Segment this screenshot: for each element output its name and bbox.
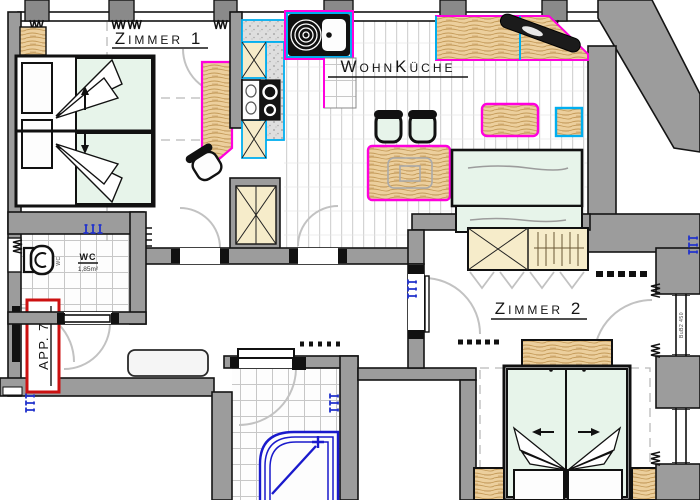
apartment-number: APP. 7 bbox=[36, 322, 51, 370]
wc-label: WC bbox=[80, 252, 97, 262]
bathroom-east-wall bbox=[340, 356, 358, 500]
kitchen-zimmer1-wall bbox=[230, 12, 242, 128]
zimmer1-label-group: Zimmer 1 bbox=[112, 29, 208, 48]
kitchen-cabinet bbox=[242, 42, 266, 78]
wall-slot bbox=[3, 387, 22, 395]
zimmer1-door-opening bbox=[180, 248, 220, 264]
zimmer2-window bbox=[672, 408, 690, 464]
zimmer2-west-wall-upper bbox=[408, 230, 424, 264]
dining-table bbox=[368, 146, 450, 200]
zimmer1-double-bed bbox=[16, 56, 154, 206]
wohnkueche-door-opening bbox=[298, 248, 338, 264]
zimmer2-wardrobe bbox=[468, 228, 588, 270]
dining-chair bbox=[408, 110, 437, 142]
dining-chair bbox=[374, 110, 403, 142]
wc-area: 1,85m² bbox=[78, 266, 99, 273]
stove bbox=[242, 80, 280, 120]
zimmer2-label-group: Zimmer 2 bbox=[491, 299, 587, 319]
zimmer2-door-leaf bbox=[425, 276, 429, 332]
zimmer2-window: BuB2 450 bbox=[672, 294, 690, 356]
wardrobe-door-fold bbox=[470, 272, 584, 288]
kitchen-counter-top bbox=[242, 20, 286, 42]
zimmer2-label: Zimmer 2 bbox=[495, 299, 584, 318]
hall-wardrobe bbox=[236, 186, 276, 244]
wohnkueche-right-wall bbox=[588, 46, 616, 216]
duvet bbox=[568, 470, 622, 500]
zimmer1: Zimmer 1 bbox=[16, 27, 232, 206]
corridor-bench bbox=[128, 350, 208, 376]
wall-stub bbox=[109, 0, 134, 21]
bathroom-west-wall bbox=[212, 392, 232, 500]
window-tag: BuB2 450 bbox=[679, 312, 685, 338]
zimmer2: Zimmer 2 BuB2 450 bbox=[408, 228, 700, 500]
faucet bbox=[326, 32, 332, 38]
stool bbox=[556, 108, 582, 136]
void-north-wall bbox=[358, 368, 476, 380]
zimmer1-label: Zimmer 1 bbox=[115, 29, 204, 48]
shower bbox=[260, 432, 338, 500]
side-table bbox=[482, 104, 538, 136]
duvet bbox=[514, 470, 564, 500]
toilet-tag: WC bbox=[56, 256, 62, 265]
headboard bbox=[522, 340, 612, 366]
wohnkueche-label-group: WohnKüche bbox=[328, 57, 468, 77]
wc-east-wall bbox=[130, 212, 146, 324]
wc-label-group: WC 1,85m² bbox=[78, 252, 99, 273]
floor-plan-page: Zimmer 1 bbox=[0, 0, 700, 500]
zimmer2-east-wall: BuB2 450 bbox=[651, 248, 700, 500]
pillow bbox=[22, 63, 52, 113]
pillow bbox=[22, 120, 52, 168]
zimmer1-nightstand bbox=[20, 27, 46, 55]
wc-door-leaf bbox=[64, 315, 110, 322]
floor-plan-drawing: Zimmer 1 bbox=[0, 0, 700, 500]
east-wall-band bbox=[588, 214, 700, 252]
sofa bbox=[452, 150, 582, 232]
kitchen-cabinet bbox=[242, 120, 266, 158]
kitchen-sink bbox=[285, 11, 353, 59]
bathroom-door-leaf bbox=[238, 349, 294, 358]
wall-hatch bbox=[146, 228, 152, 246]
wall-stub bbox=[25, 0, 49, 21]
zimmer2-nightstand bbox=[474, 468, 504, 500]
wc-north-wall bbox=[8, 212, 144, 234]
zimmer2-double-bed bbox=[504, 340, 630, 500]
wohnkueche-label: WohnKüche bbox=[340, 57, 455, 76]
